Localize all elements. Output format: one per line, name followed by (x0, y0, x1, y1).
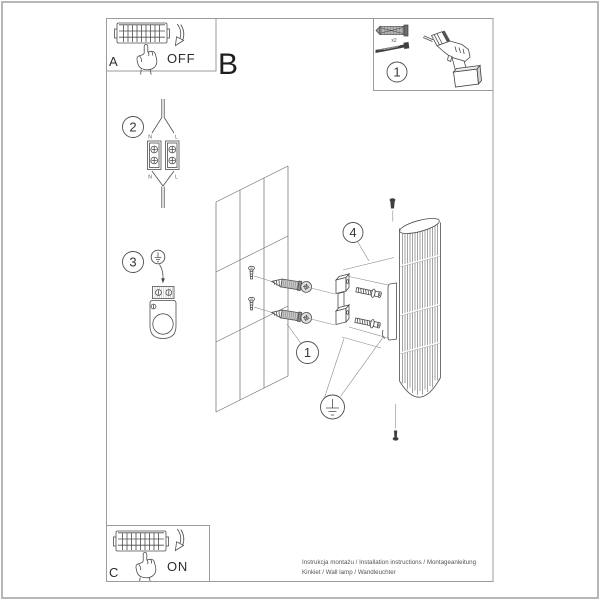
mounting-bracket (336, 274, 349, 325)
lamp-back-strip (382, 283, 396, 340)
terminal-l-bottom: L (175, 175, 178, 181)
exploded-view: 4 1 (216, 166, 441, 441)
plug-leader-lines (311, 288, 335, 325)
ground-symbol-small (151, 250, 165, 264)
wire-bottom (162, 187, 164, 209)
callout-1-main: 1 (287, 324, 319, 364)
lamp-terminal-icon (153, 287, 175, 299)
terminal-l-top: L (175, 135, 178, 141)
panel-c-label: C (109, 565, 118, 580)
lamp-body (398, 215, 440, 397)
ground-arrowhead (161, 278, 165, 283)
exploded-rails (342, 258, 394, 349)
ground-symbol-main (321, 336, 385, 419)
pressing-hand-icon (137, 45, 157, 75)
panel-a-label: A (109, 54, 118, 69)
manual-page: 4 1 2 N L N (0, 0, 600, 600)
lamp-top-screw (390, 198, 396, 221)
panel-a: A OFF (107, 19, 217, 75)
ground-arrow (160, 265, 164, 279)
step-3-number: 3 (129, 255, 136, 270)
callout-4: 4 (343, 223, 369, 262)
tools-panel: x2 1 (374, 19, 494, 91)
off-label: OFF (167, 51, 195, 66)
bracket-screw-icon (354, 285, 382, 329)
lamp-bottom-screw (393, 404, 399, 441)
step-2-number: 2 (129, 120, 136, 135)
terminal-block-icon (148, 141, 180, 170)
wall-plug-assembly (271, 276, 313, 324)
switch-strip-icon (115, 23, 170, 43)
footer-line-2: Kinkiet / Wall lamp / Wandleuchter (302, 569, 396, 576)
drill-icon (423, 31, 482, 87)
section-b-label: B (218, 48, 238, 81)
terminal-n-top: N (148, 135, 152, 141)
tools-callout-number: 1 (393, 65, 400, 80)
wall-screw-icon (249, 266, 255, 310)
switch-strip-icon-c (114, 531, 169, 551)
page-border (2, 2, 598, 598)
wire-top (162, 99, 164, 118)
lamp-bracket-back (150, 301, 176, 339)
ground-step: 3 (123, 250, 177, 338)
tiled-wall (216, 166, 288, 412)
wiring-diagram: 2 N L N L (123, 99, 180, 208)
off-arrow-icon (175, 24, 183, 46)
quantity-label: x2 (391, 38, 397, 44)
callout-1-number: 1 (304, 345, 311, 360)
terminal-n-bottom: N (148, 175, 152, 181)
pressing-hand-icon-c (136, 553, 156, 582)
panel-c: C ON (107, 526, 210, 582)
wall-plug-icon (376, 25, 408, 36)
callout-4-number: 4 (349, 225, 356, 240)
wire-merge (152, 171, 174, 186)
footer-line-1: Instrukcja montażu / Installation instru… (302, 559, 477, 566)
on-label: ON (167, 559, 188, 574)
wire-split (152, 118, 174, 134)
screw-leader-lines (254, 276, 272, 313)
on-arrow-icon (175, 529, 183, 551)
